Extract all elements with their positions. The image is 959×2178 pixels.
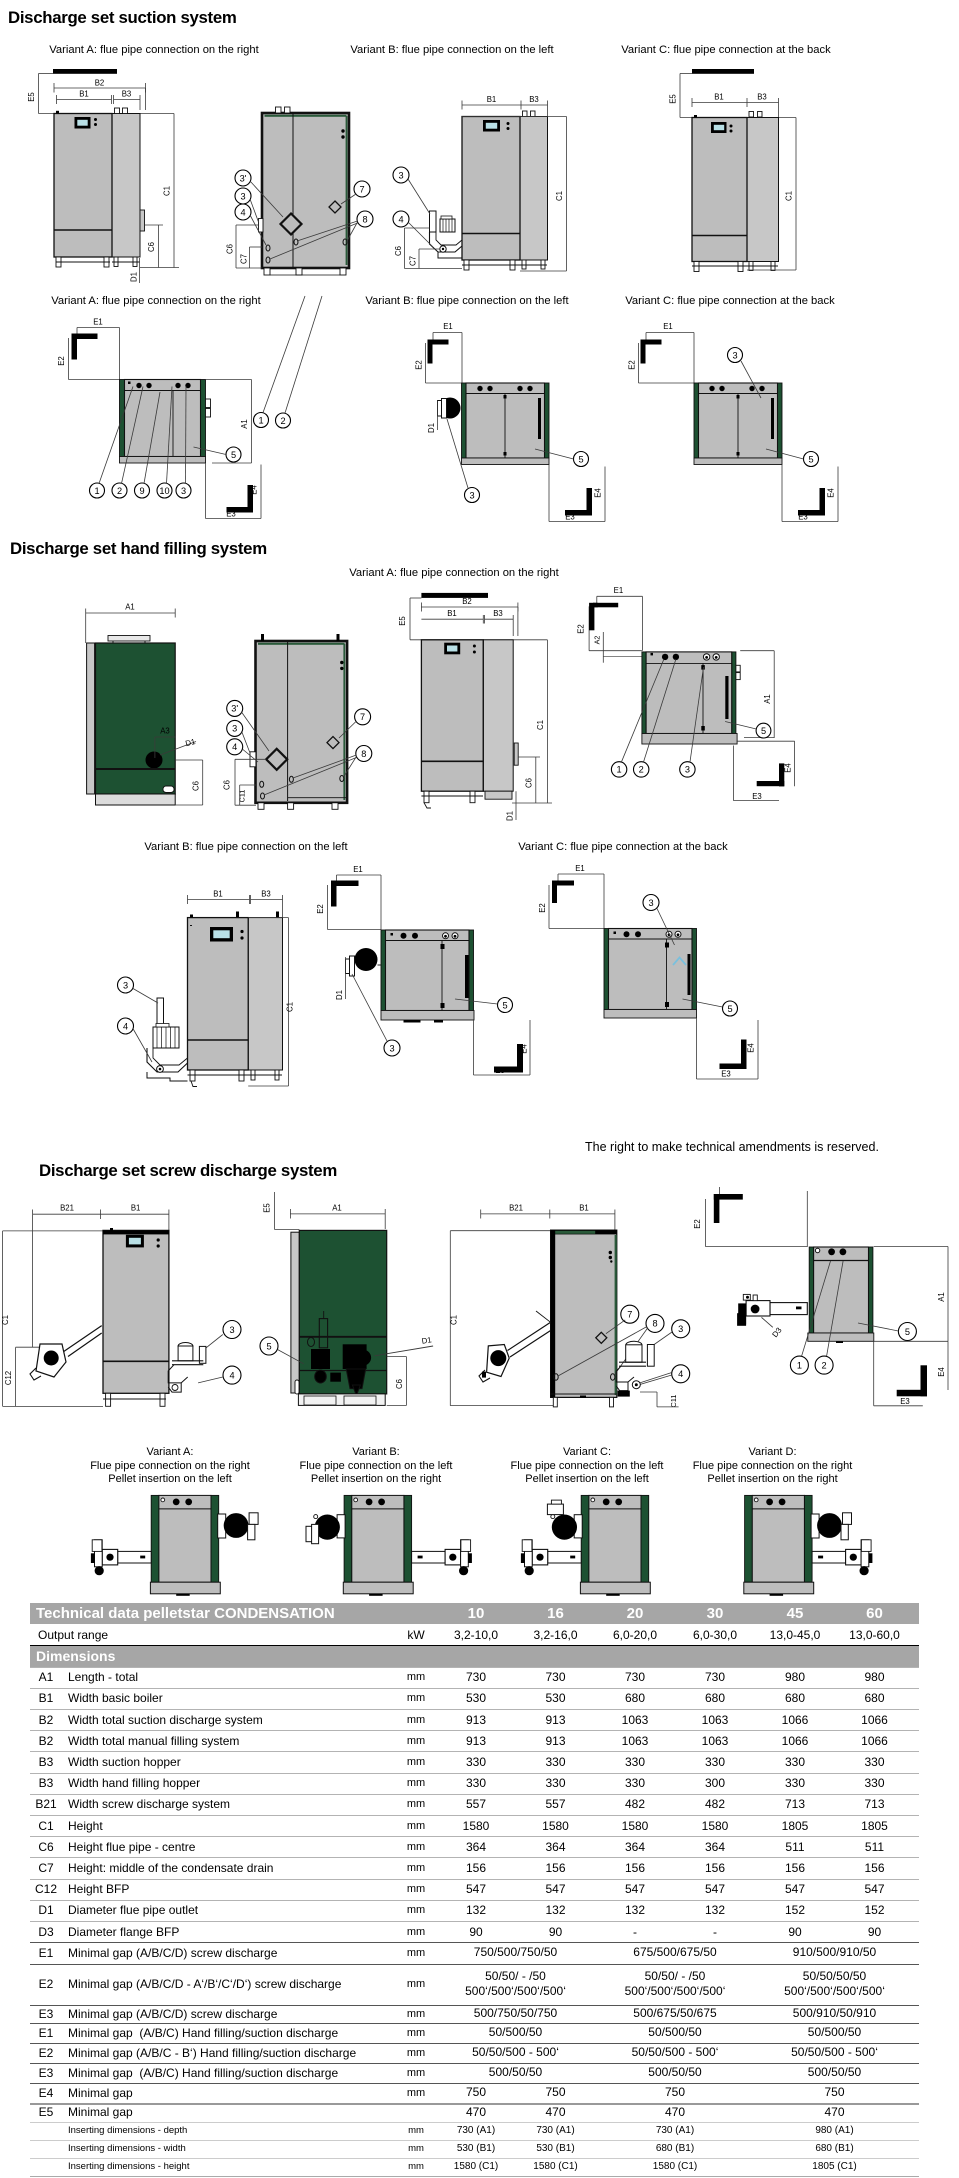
- svg-text:2: 2: [639, 765, 644, 775]
- svg-text:B21: B21: [60, 1204, 74, 1213]
- svg-text:4: 4: [232, 742, 237, 752]
- svg-text:3: 3: [398, 170, 403, 180]
- svg-text:4: 4: [240, 207, 245, 217]
- svg-text:B1: B1: [579, 1204, 589, 1213]
- svg-text:7: 7: [359, 184, 364, 194]
- svg-text:E1: E1: [353, 865, 363, 874]
- svg-text:E1: E1: [93, 318, 103, 327]
- svg-text:E1: E1: [443, 322, 453, 331]
- svg-text:D1: D1: [427, 423, 436, 433]
- svg-text:C1: C1: [286, 1002, 295, 1012]
- svg-text:1: 1: [617, 765, 622, 775]
- svg-text:C1: C1: [536, 720, 545, 730]
- svg-text:3: 3: [232, 724, 237, 734]
- svg-text:E2: E2: [57, 356, 66, 366]
- svg-text:4: 4: [398, 214, 403, 224]
- svg-text:B1: B1: [447, 609, 457, 618]
- svg-text:5: 5: [727, 1004, 732, 1014]
- svg-text:A1: A1: [240, 419, 249, 429]
- svg-text:E4: E4: [250, 485, 259, 495]
- svg-text:E5: E5: [669, 94, 678, 104]
- svg-text:E2: E2: [628, 360, 637, 370]
- svg-text:8: 8: [361, 749, 366, 759]
- svg-text:A1: A1: [332, 1204, 342, 1213]
- svg-text:E3: E3: [495, 1066, 505, 1075]
- svg-text:E4: E4: [937, 1367, 946, 1377]
- svg-text:D1: D1: [130, 272, 139, 282]
- svg-text:C6: C6: [394, 246, 403, 256]
- svg-text:3': 3': [240, 173, 247, 183]
- svg-text:E1: E1: [614, 586, 624, 595]
- svg-text:E4: E4: [747, 1043, 756, 1053]
- svg-text:4: 4: [123, 1021, 128, 1031]
- svg-text:B1: B1: [487, 95, 497, 104]
- svg-text:C6: C6: [192, 781, 201, 791]
- svg-text:3: 3: [469, 490, 474, 500]
- svg-text:3': 3': [231, 704, 238, 714]
- svg-text:D1: D1: [335, 990, 344, 1000]
- svg-text:B3: B3: [757, 93, 767, 102]
- svg-text:A1: A1: [125, 603, 135, 612]
- svg-text:2: 2: [280, 416, 285, 426]
- svg-text:E2: E2: [316, 904, 325, 914]
- svg-text:E3: E3: [798, 513, 808, 522]
- svg-text:D3: D3: [770, 1326, 783, 1339]
- svg-text:B2: B2: [462, 597, 472, 606]
- svg-text:1: 1: [94, 486, 99, 496]
- svg-text:B3: B3: [261, 890, 271, 899]
- svg-text:E5: E5: [27, 92, 36, 102]
- svg-text:3: 3: [240, 191, 245, 201]
- svg-text:3: 3: [181, 486, 186, 496]
- svg-text:B1: B1: [131, 1204, 141, 1213]
- svg-text:5: 5: [808, 454, 813, 464]
- svg-text:3: 3: [389, 1043, 394, 1053]
- svg-text:5: 5: [266, 1341, 271, 1351]
- svg-text:10: 10: [159, 486, 169, 496]
- svg-text:E5: E5: [398, 616, 407, 626]
- svg-text:C1: C1: [450, 1315, 459, 1325]
- svg-text:B2: B2: [95, 79, 105, 88]
- svg-text:A3: A3: [160, 727, 170, 736]
- svg-text:2: 2: [822, 1360, 827, 1370]
- svg-text:E2: E2: [538, 903, 547, 913]
- svg-text:D1: D1: [506, 811, 515, 821]
- svg-text:3: 3: [678, 1324, 683, 1334]
- svg-text:C6: C6: [226, 244, 235, 254]
- svg-text:2: 2: [117, 486, 122, 496]
- svg-text:C6: C6: [525, 778, 534, 788]
- svg-text:D1: D1: [421, 1335, 432, 1345]
- svg-text:4: 4: [678, 1369, 683, 1379]
- svg-text:3: 3: [732, 350, 737, 360]
- svg-text:5: 5: [578, 454, 583, 464]
- svg-text:E1: E1: [663, 322, 673, 331]
- svg-text:5: 5: [231, 450, 236, 460]
- svg-text:C1: C1: [163, 186, 172, 196]
- svg-text:E4: E4: [594, 488, 603, 498]
- svg-text:E4: E4: [520, 1044, 529, 1054]
- svg-text:D1: D1: [184, 737, 196, 748]
- svg-text:3: 3: [123, 980, 128, 990]
- svg-text:E3: E3: [900, 1397, 910, 1406]
- svg-text:C1: C1: [785, 191, 794, 201]
- svg-text:E1: E1: [575, 864, 585, 873]
- svg-text:C7: C7: [409, 256, 418, 266]
- svg-text:C7: C7: [240, 254, 249, 264]
- svg-text:4: 4: [229, 1370, 234, 1380]
- svg-text:5: 5: [761, 726, 766, 736]
- svg-text:3: 3: [648, 898, 653, 908]
- svg-text:C11: C11: [238, 790, 247, 803]
- svg-text:C1: C1: [555, 191, 564, 201]
- svg-text:E2: E2: [693, 1219, 702, 1229]
- svg-text:7: 7: [360, 712, 365, 722]
- svg-text:E3: E3: [226, 510, 236, 519]
- svg-text:1: 1: [258, 415, 263, 425]
- svg-text:E2: E2: [577, 624, 586, 634]
- svg-text:B3: B3: [122, 90, 132, 99]
- svg-text:8: 8: [652, 1319, 657, 1329]
- svg-text:3: 3: [685, 765, 690, 775]
- svg-text:5: 5: [502, 1000, 507, 1010]
- svg-text:E4: E4: [784, 763, 793, 773]
- svg-text:7: 7: [627, 1310, 632, 1320]
- svg-text:A2: A2: [593, 636, 602, 645]
- svg-text:B1: B1: [714, 93, 724, 102]
- svg-text:E5: E5: [263, 1203, 272, 1213]
- svg-text:B1: B1: [213, 890, 223, 899]
- svg-text:C6: C6: [395, 1379, 404, 1389]
- svg-text:B3: B3: [493, 609, 503, 618]
- svg-text:E2: E2: [415, 360, 424, 370]
- svg-text:C1: C1: [1, 1315, 10, 1325]
- svg-text:E4: E4: [827, 488, 836, 498]
- svg-text:B21: B21: [509, 1204, 523, 1213]
- svg-text:C6: C6: [223, 780, 232, 790]
- svg-text:C6: C6: [147, 242, 156, 252]
- svg-text:C11: C11: [669, 1395, 678, 1408]
- svg-text:C12: C12: [4, 1371, 13, 1385]
- svg-text:E3: E3: [752, 792, 762, 801]
- svg-text:B3: B3: [529, 95, 539, 104]
- svg-text:E3: E3: [721, 1070, 731, 1079]
- svg-text:9: 9: [139, 486, 144, 496]
- svg-text:8: 8: [362, 214, 367, 224]
- svg-text:3: 3: [229, 1325, 234, 1335]
- svg-text:1: 1: [797, 1360, 802, 1370]
- svg-text:A1: A1: [763, 694, 772, 704]
- svg-text:B1: B1: [79, 90, 89, 99]
- svg-text:E3: E3: [565, 513, 575, 522]
- svg-text:A1: A1: [937, 1292, 946, 1302]
- svg-text:5: 5: [905, 1327, 910, 1337]
